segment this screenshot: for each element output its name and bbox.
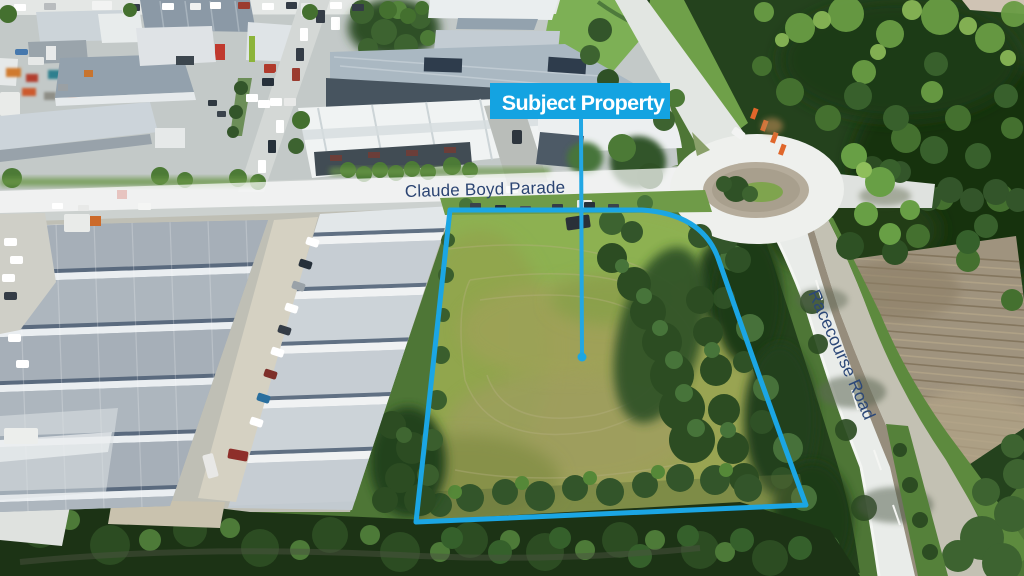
svg-text:Subject Property: Subject Property [502,91,665,115]
